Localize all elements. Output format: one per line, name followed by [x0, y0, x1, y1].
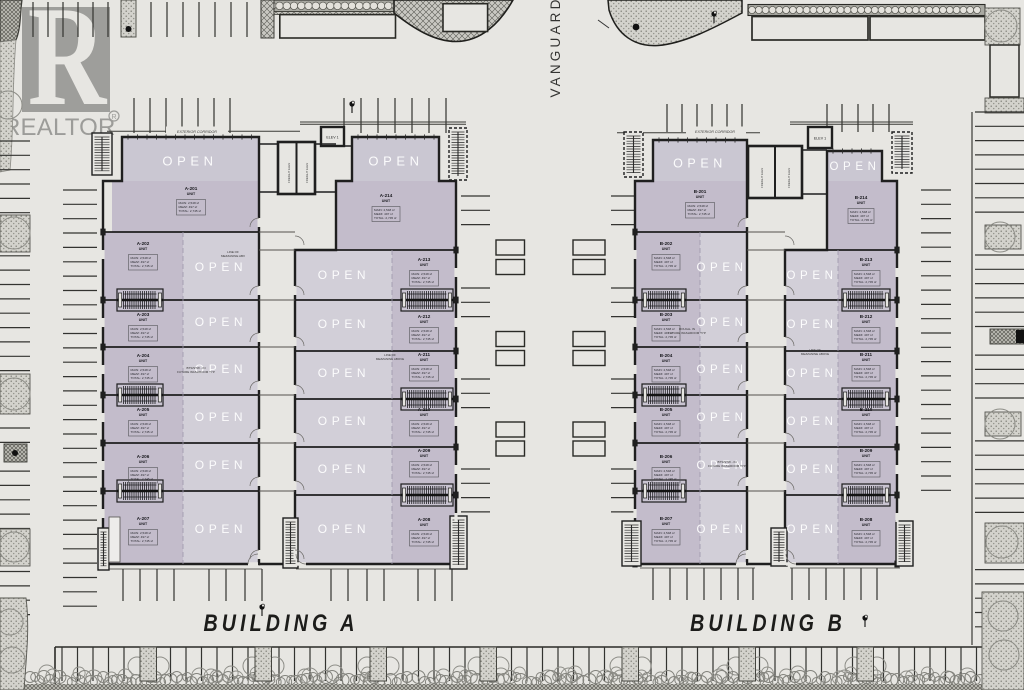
svg-text:FUTURE WASHROOM TYP: FUTURE WASHROOM TYP [708, 464, 746, 468]
svg-text:UNIT: UNIT [187, 192, 196, 196]
svg-text:EXTERIOR CORRIDOR: EXTERIOR CORRIDOR [177, 130, 217, 134]
svg-text:UNIT: UNIT [420, 413, 429, 417]
svg-text:UNIT: UNIT [420, 454, 429, 458]
svg-text:OPEN: OPEN [195, 315, 247, 329]
svg-text:TOTAL: 2,745 sf: TOTAL: 2,745 sf [854, 280, 877, 284]
svg-text:OPEN: OPEN [318, 268, 370, 282]
svg-text:UNIT: UNIT [420, 320, 429, 324]
svg-text:A-210: A-210 [418, 407, 431, 412]
svg-text:A-211: A-211 [418, 352, 431, 357]
svg-text:OPEN: OPEN [787, 464, 838, 476]
svg-text:OPEN: OPEN [368, 154, 423, 169]
svg-text:A-213: A-213 [418, 257, 431, 262]
svg-text:A-208: A-208 [418, 517, 431, 522]
svg-text:OPEN: OPEN [697, 364, 748, 376]
svg-text:A-207: A-207 [137, 516, 150, 521]
svg-text:OPEN: OPEN [318, 522, 370, 536]
svg-text:TOTAL: 2,745 sf: TOTAL: 2,745 sf [412, 471, 435, 475]
svg-text:TOTAL: 2,745 sf: TOTAL: 2,745 sf [854, 375, 877, 379]
svg-text:TOTAL: 2,745 sf: TOTAL: 2,745 sf [412, 337, 435, 341]
svg-text:B-212: B-212 [860, 314, 873, 319]
svg-text:OPEN: OPEN [318, 317, 370, 331]
svg-text:TOTAL: 2,745 sf: TOTAL: 2,745 sf [854, 471, 877, 475]
svg-text:FREIGHT ELEV: FREIGHT ELEV [287, 163, 291, 183]
svg-text:VANGUARD: VANGUARD [548, 0, 563, 98]
svg-text:OPEN: OPEN [318, 414, 370, 428]
svg-text:MEZZANINE ABOVE: MEZZANINE ABOVE [376, 357, 404, 361]
svg-text:UNIT: UNIT [139, 318, 148, 322]
svg-text:UNIT: UNIT [662, 359, 671, 363]
svg-text:UNIT: UNIT [862, 454, 871, 458]
svg-text:EXTERIOR CORRIDOR: EXTERIOR CORRIDOR [695, 130, 735, 134]
svg-text:A-205: A-205 [137, 407, 150, 412]
svg-text:UNIT: UNIT [662, 247, 671, 251]
svg-text:OPEN: OPEN [318, 462, 370, 476]
svg-text:UNIT: UNIT [139, 413, 148, 417]
svg-text:TOTAL: 2,745 sf: TOTAL: 2,745 sf [850, 218, 873, 222]
svg-text:TOTAL: 2,745 sf: TOTAL: 2,745 sf [131, 264, 154, 268]
svg-text:FUTURE WASHROOM TYP: FUTURE WASHROOM TYP [668, 331, 706, 335]
svg-text:UNIT: UNIT [382, 199, 391, 203]
svg-text:TOTAL: 2,745 sf: TOTAL: 2,745 sf [654, 430, 677, 434]
svg-text:ELEV 1: ELEV 1 [814, 137, 826, 141]
svg-text:A-204: A-204 [137, 353, 150, 358]
svg-text:TOTAL: 2,745 sf: TOTAL: 2,745 sf [854, 337, 877, 341]
svg-text:OPEN: OPEN [697, 262, 748, 274]
svg-text:OPEN: OPEN [830, 161, 881, 173]
svg-text:B-202: B-202 [660, 241, 673, 246]
svg-text:TOTAL: 2,745 sf: TOTAL: 2,745 sf [688, 212, 711, 216]
svg-text:BUILDING A: BUILDING A [203, 609, 358, 636]
svg-text:MEZZANINE ABOVE: MEZZANINE ABOVE [801, 352, 829, 356]
svg-text:OPEN: OPEN [697, 317, 748, 329]
svg-text:OPEN: OPEN [787, 368, 838, 380]
svg-text:TOTAL: 2,745 sf: TOTAL: 2,745 sf [412, 375, 435, 379]
svg-text:B-213: B-213 [860, 257, 873, 262]
svg-text:UNIT: UNIT [420, 263, 429, 267]
svg-text:B-210: B-210 [860, 407, 873, 412]
svg-text:OPEN: OPEN [697, 524, 748, 536]
svg-text:OPEN: OPEN [787, 270, 838, 282]
svg-text:UNIT: UNIT [862, 413, 871, 417]
svg-text:OPEN: OPEN [787, 524, 838, 536]
svg-text:BUILDING B: BUILDING B [690, 609, 846, 636]
svg-text:OPEN: OPEN [673, 156, 727, 170]
svg-text:A-206: A-206 [137, 454, 150, 459]
svg-text:UNIT: UNIT [662, 522, 671, 526]
svg-text:B-208: B-208 [860, 517, 873, 522]
svg-text:UNIT: UNIT [862, 320, 871, 324]
svg-text:OPEN: OPEN [697, 412, 748, 424]
svg-text:UNIT: UNIT [139, 522, 148, 526]
svg-text:TOTAL: 2,745 sf: TOTAL: 2,745 sf [654, 376, 677, 380]
svg-text:TOTAL: 2,745 sf: TOTAL: 2,745 sf [654, 335, 677, 339]
svg-text:B-201: B-201 [694, 189, 707, 194]
svg-text:UNIT: UNIT [420, 523, 429, 527]
svg-text:OPEN: OPEN [195, 458, 247, 472]
svg-text:TOTAL: 2,745 sf: TOTAL: 2,745 sf [131, 430, 154, 434]
svg-text:TOTAL: 2,745 sf: TOTAL: 2,745 sf [131, 335, 154, 339]
svg-text:UNIT: UNIT [139, 359, 148, 363]
svg-text:FUTURE WASHROOM TYP: FUTURE WASHROOM TYP [177, 370, 215, 374]
svg-text:UNIT: UNIT [420, 358, 429, 362]
svg-text:OPEN: OPEN [162, 154, 217, 169]
svg-text:FREIGHT ELEV: FREIGHT ELEV [305, 163, 309, 183]
svg-text:UNIT: UNIT [862, 263, 871, 267]
svg-text:TOTAL: 2,745 sf: TOTAL: 2,745 sf [374, 216, 397, 220]
svg-text:FREIGHT ELEV: FREIGHT ELEV [787, 168, 791, 188]
svg-text:UNIT: UNIT [662, 460, 671, 464]
svg-text:UNIT: UNIT [139, 460, 148, 464]
svg-text:A-209: A-209 [418, 448, 431, 453]
svg-text:A-203: A-203 [137, 312, 150, 317]
svg-text:OPEN: OPEN [195, 260, 247, 274]
svg-text:TOTAL: 2,745 sf: TOTAL: 2,745 sf [131, 477, 154, 481]
svg-text:UNIT: UNIT [862, 523, 871, 527]
svg-text:UNIT: UNIT [857, 201, 866, 205]
svg-text:TOTAL: 2,745 sf: TOTAL: 2,745 sf [854, 430, 877, 434]
svg-text:UNIT: UNIT [662, 413, 671, 417]
svg-text:TOTAL: 2,745 sf: TOTAL: 2,745 sf [131, 539, 154, 543]
svg-text:B-207: B-207 [660, 516, 673, 521]
svg-text:B-209: B-209 [860, 448, 873, 453]
svg-text:TOTAL: 2,745 sf: TOTAL: 2,745 sf [654, 477, 677, 481]
svg-text:OPEN: OPEN [195, 522, 247, 536]
svg-text:B-203: B-203 [660, 312, 673, 317]
svg-text:TOTAL: 2,745 sf: TOTAL: 2,745 sf [179, 209, 202, 213]
svg-text:TOTAL: 2,745 sf: TOTAL: 2,745 sf [131, 376, 154, 380]
svg-text:FREIGHT ELEV: FREIGHT ELEV [760, 168, 764, 188]
svg-text:A-201: A-201 [185, 186, 198, 191]
svg-text:B-204: B-204 [660, 353, 673, 358]
svg-text:B-211: B-211 [860, 352, 873, 357]
svg-text:UNIT: UNIT [696, 195, 705, 199]
svg-text:OPEN: OPEN [318, 366, 370, 380]
svg-text:TOTAL: 2,745 sf: TOTAL: 2,745 sf [412, 430, 435, 434]
svg-text:TOTAL: 2,745 sf: TOTAL: 2,745 sf [854, 540, 877, 544]
svg-text:B-205: B-205 [660, 407, 673, 412]
svg-text:TOTAL: 2,745 sf: TOTAL: 2,745 sf [412, 280, 435, 284]
svg-text:OPEN: OPEN [787, 416, 838, 428]
svg-text:TOTAL: 2,745 sf: TOTAL: 2,745 sf [654, 539, 677, 543]
svg-text:A-202: A-202 [137, 241, 150, 246]
svg-text:B-206: B-206 [660, 454, 673, 459]
svg-text:UNIT: UNIT [862, 358, 871, 362]
svg-text:TOTAL: 2,745 sf: TOTAL: 2,745 sf [654, 264, 677, 268]
svg-text:UNIT: UNIT [139, 247, 148, 251]
svg-text:TOTAL: 2,745 sf: TOTAL: 2,745 sf [412, 540, 435, 544]
svg-text:A-212: A-212 [418, 314, 431, 319]
svg-text:ELEV 1: ELEV 1 [326, 136, 338, 140]
svg-text:A-214: A-214 [380, 193, 393, 198]
svg-text:OPEN: OPEN [195, 410, 247, 424]
svg-text:B-214: B-214 [855, 195, 868, 200]
svg-text:OPEN: OPEN [787, 319, 838, 331]
svg-text:UNIT: UNIT [662, 318, 671, 322]
svg-text:MEZZANINE ABV: MEZZANINE ABV [221, 254, 245, 258]
